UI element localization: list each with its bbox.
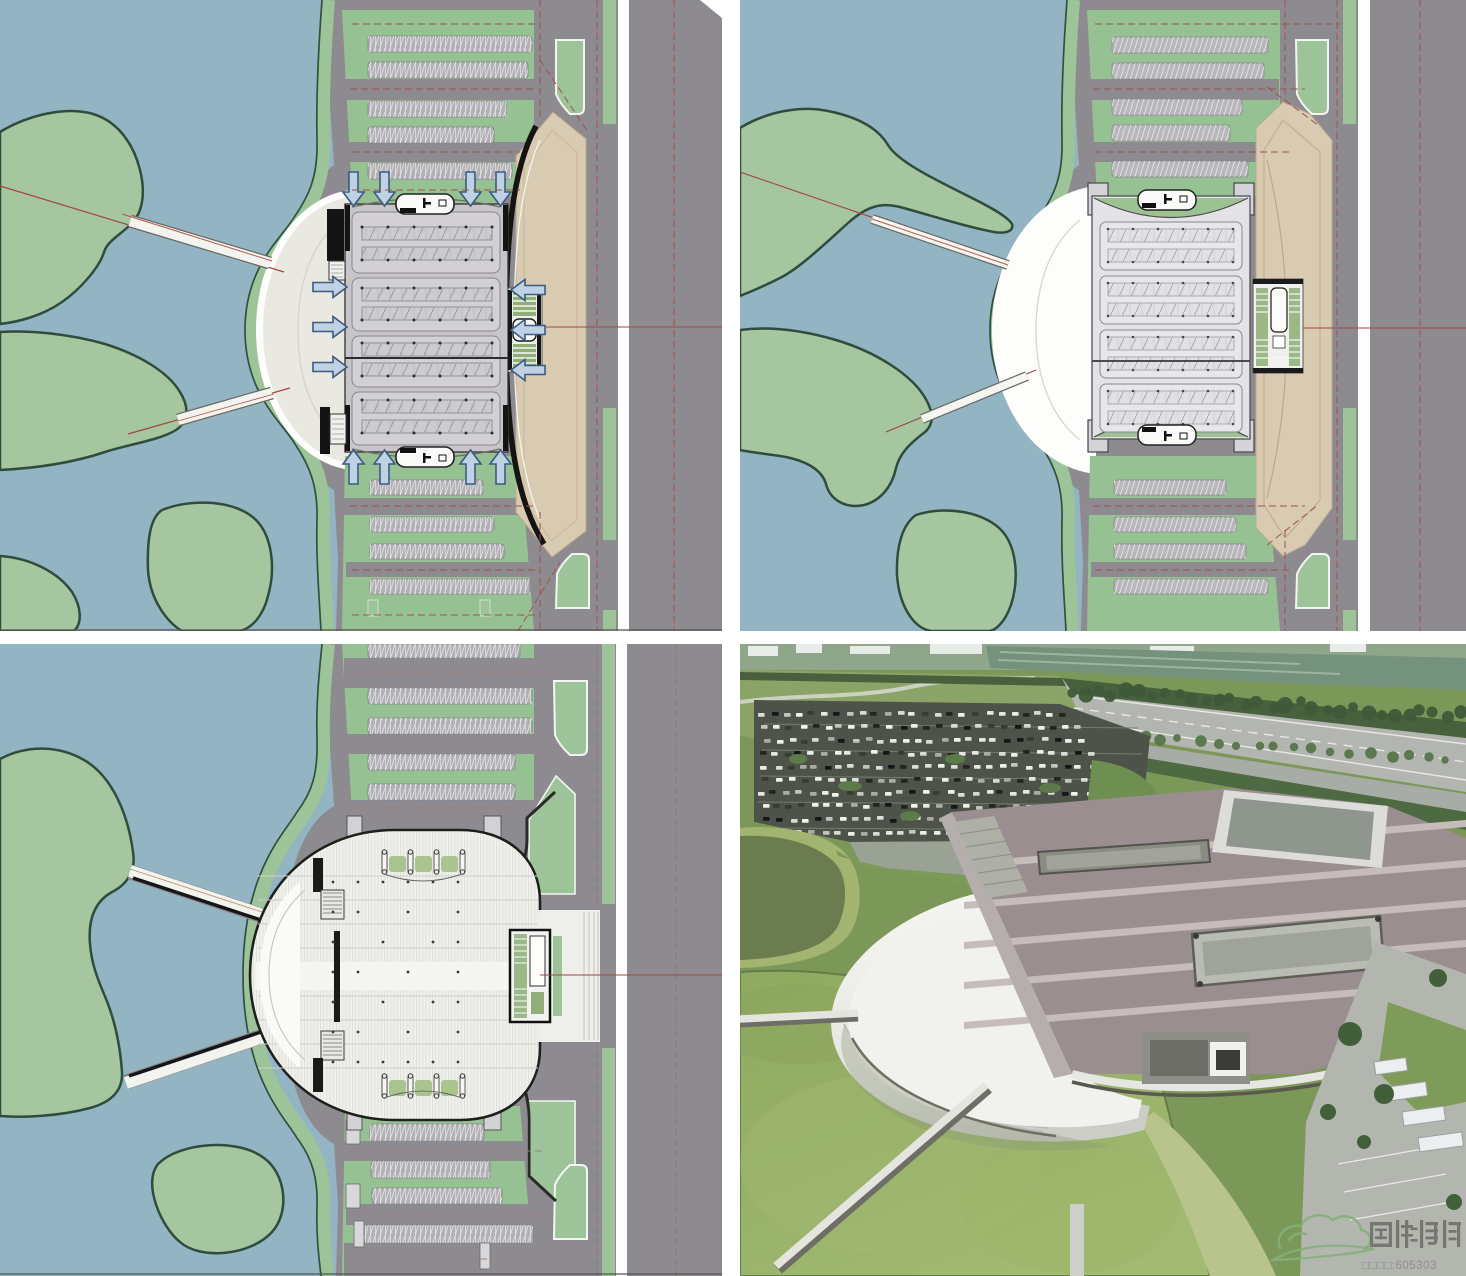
svg-text:□□□□:605303: □□□□:605303 (1362, 1260, 1437, 1272)
